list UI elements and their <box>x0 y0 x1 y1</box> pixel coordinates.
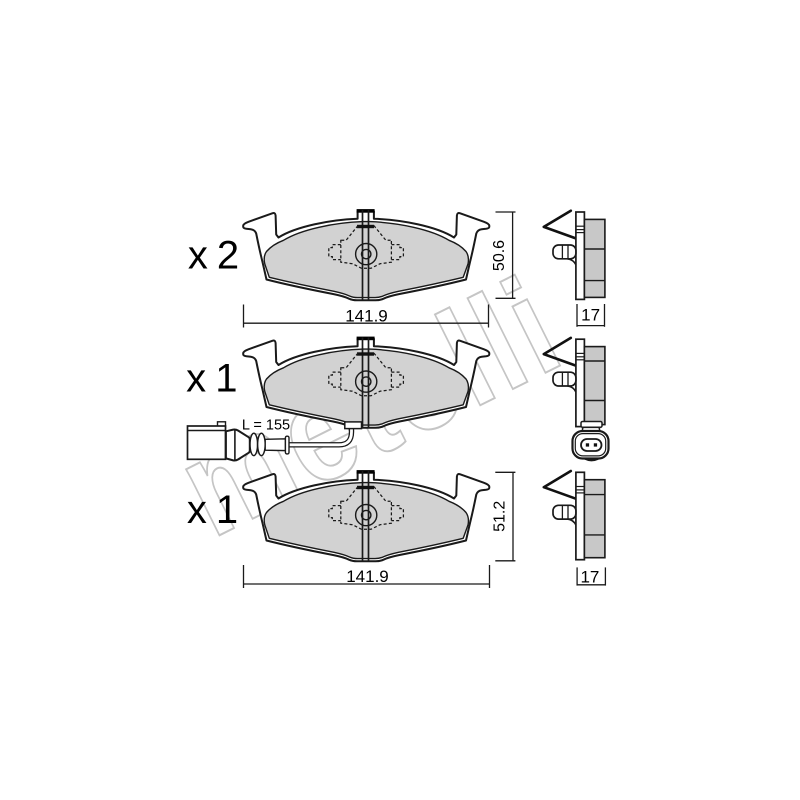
svg-text:x 1: x 1 <box>187 488 237 532</box>
svg-text:141.9: 141.9 <box>346 567 389 586</box>
svg-text:141.9: 141.9 <box>345 306 388 325</box>
svg-text:L = 155: L = 155 <box>242 417 290 433</box>
svg-text:50.6: 50.6 <box>491 240 508 271</box>
svg-text:x 1: x 1 <box>186 357 236 401</box>
svg-text:51.2: 51.2 <box>491 501 508 532</box>
svg-text:17: 17 <box>580 567 599 586</box>
svg-text:17: 17 <box>581 305 600 324</box>
svg-text:x 2: x 2 <box>188 234 238 278</box>
